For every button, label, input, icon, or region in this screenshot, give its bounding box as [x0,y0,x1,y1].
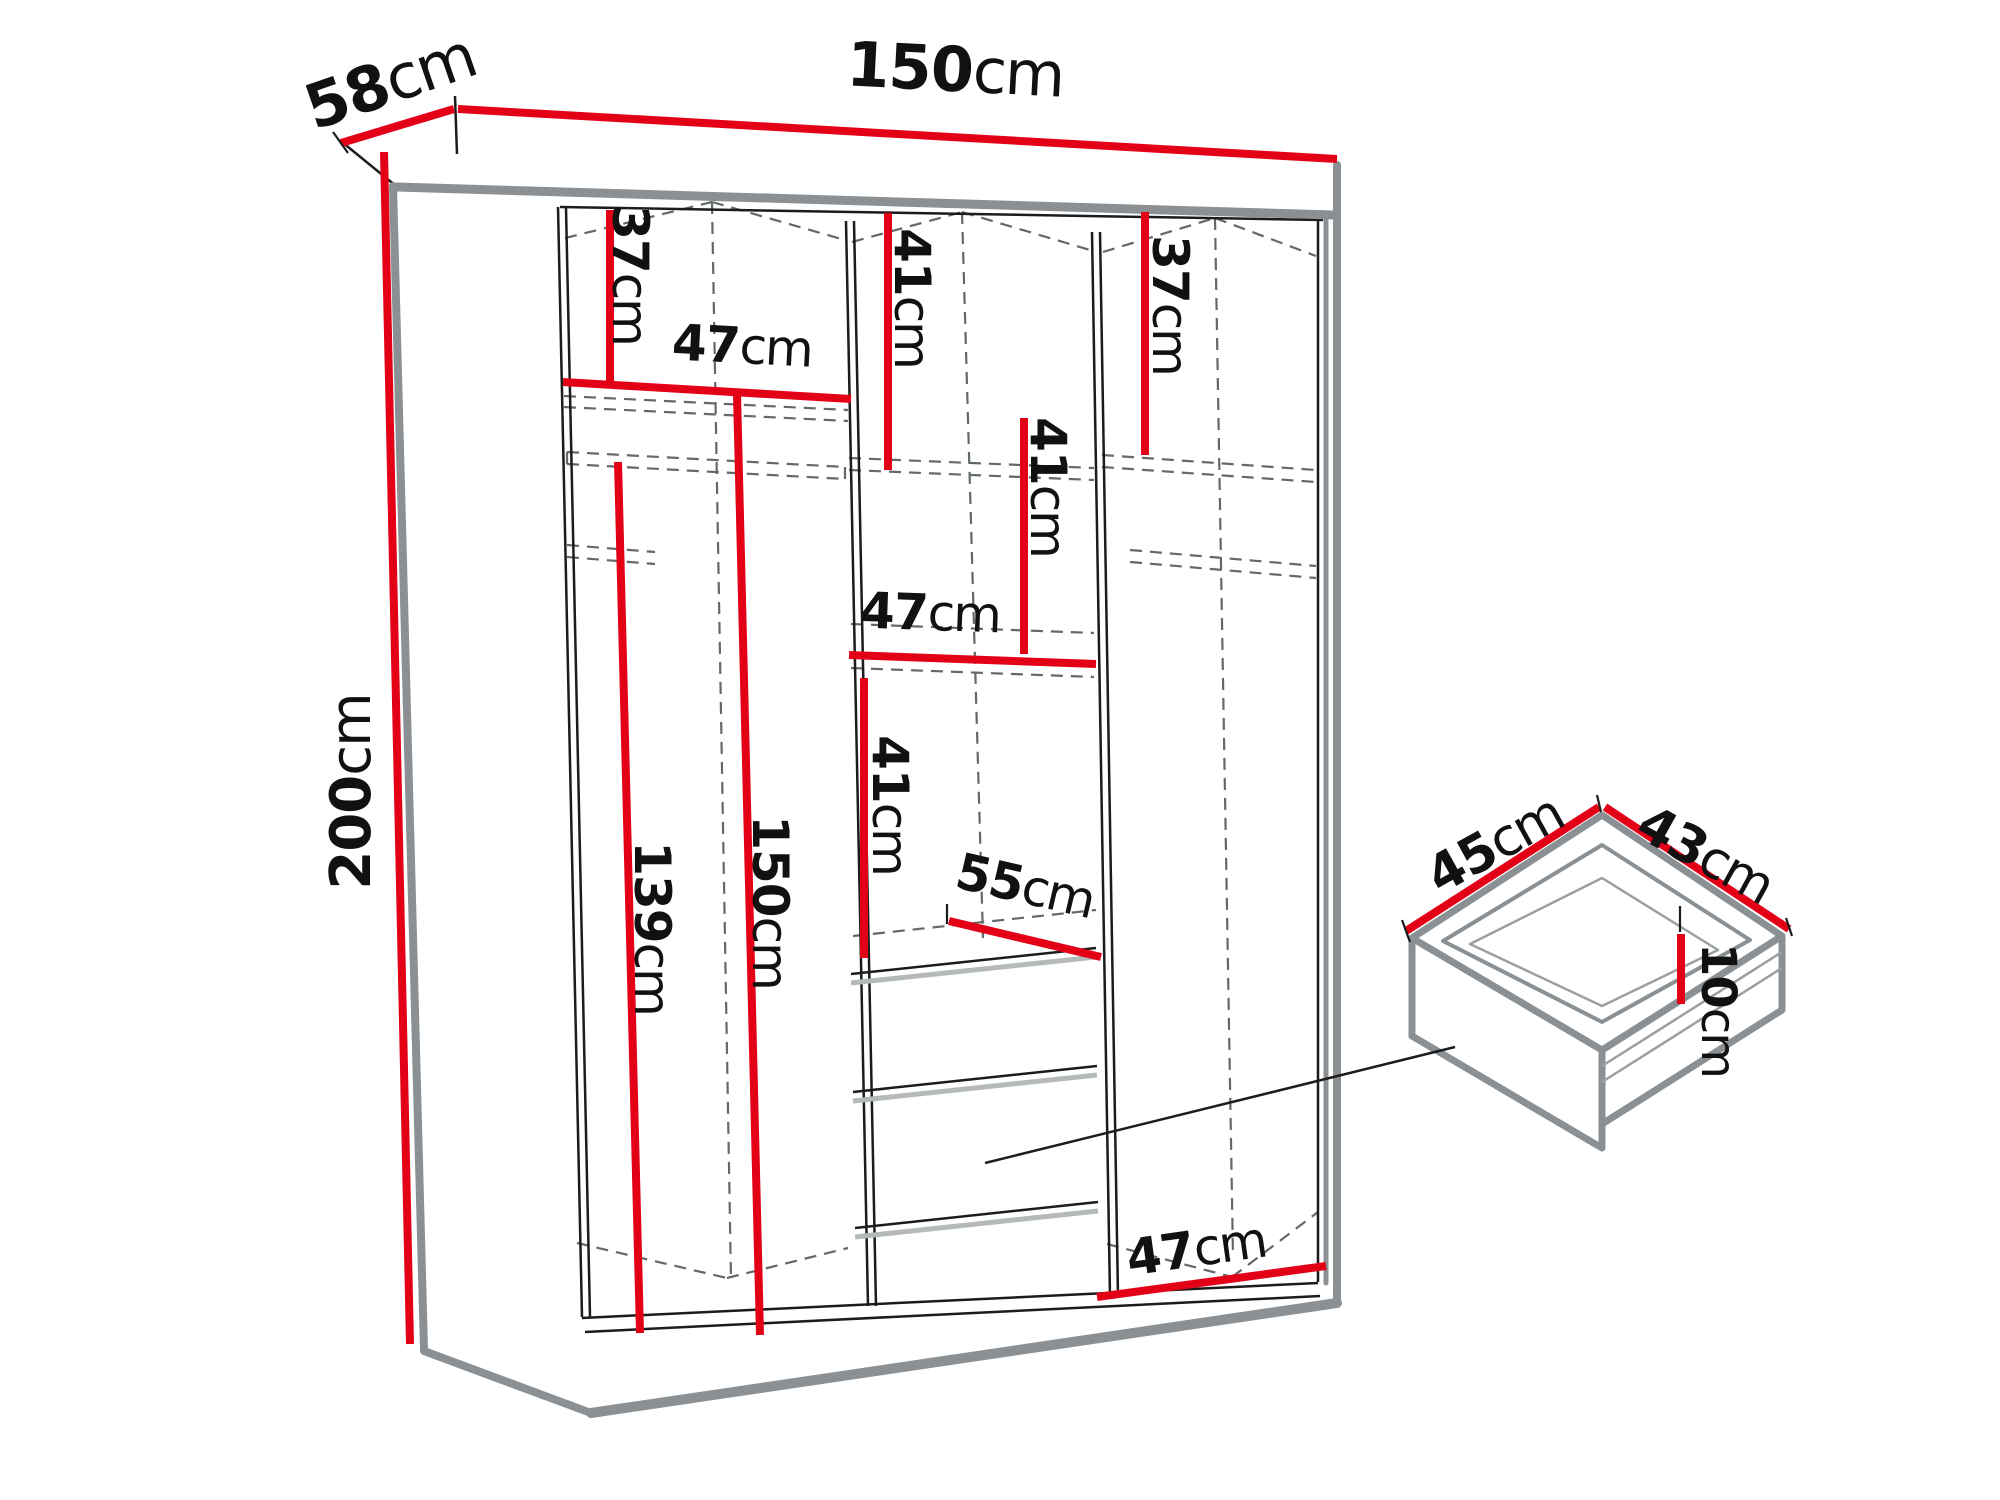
drawer-pointer-line [985,1047,1455,1163]
label-left-shelf-width: 47cm [671,317,813,374]
wardrobe-line-art [0,0,2000,1500]
label-width-top: 150cm [845,33,1065,106]
dim-line-mid-shelf-47 [849,655,1096,664]
dimension-diagram: 150cm 58cm 200cm 37cm 47cm 139cm 150cm 4… [0,0,2000,1500]
drawer-stack [851,948,1098,1237]
label-right-shelf-height: 37cm [1145,235,1195,375]
label-139: 139cm [627,841,677,1015]
dim-line-left-shelf-47 [563,382,851,399]
label-inner-150: 150cm [745,815,795,989]
label-height-left: 200cm [324,694,380,889]
label-mid-41-3: 41cm [865,735,915,875]
label-mid-shelf-width: 47cm [859,586,1000,641]
label-drawer-10: 10cm [1694,943,1742,1077]
label-left-shelf-height: 37cm [605,205,655,345]
label-mid-41-2: 41cm [1023,417,1073,557]
label-mid-41-1: 41cm [887,228,937,368]
